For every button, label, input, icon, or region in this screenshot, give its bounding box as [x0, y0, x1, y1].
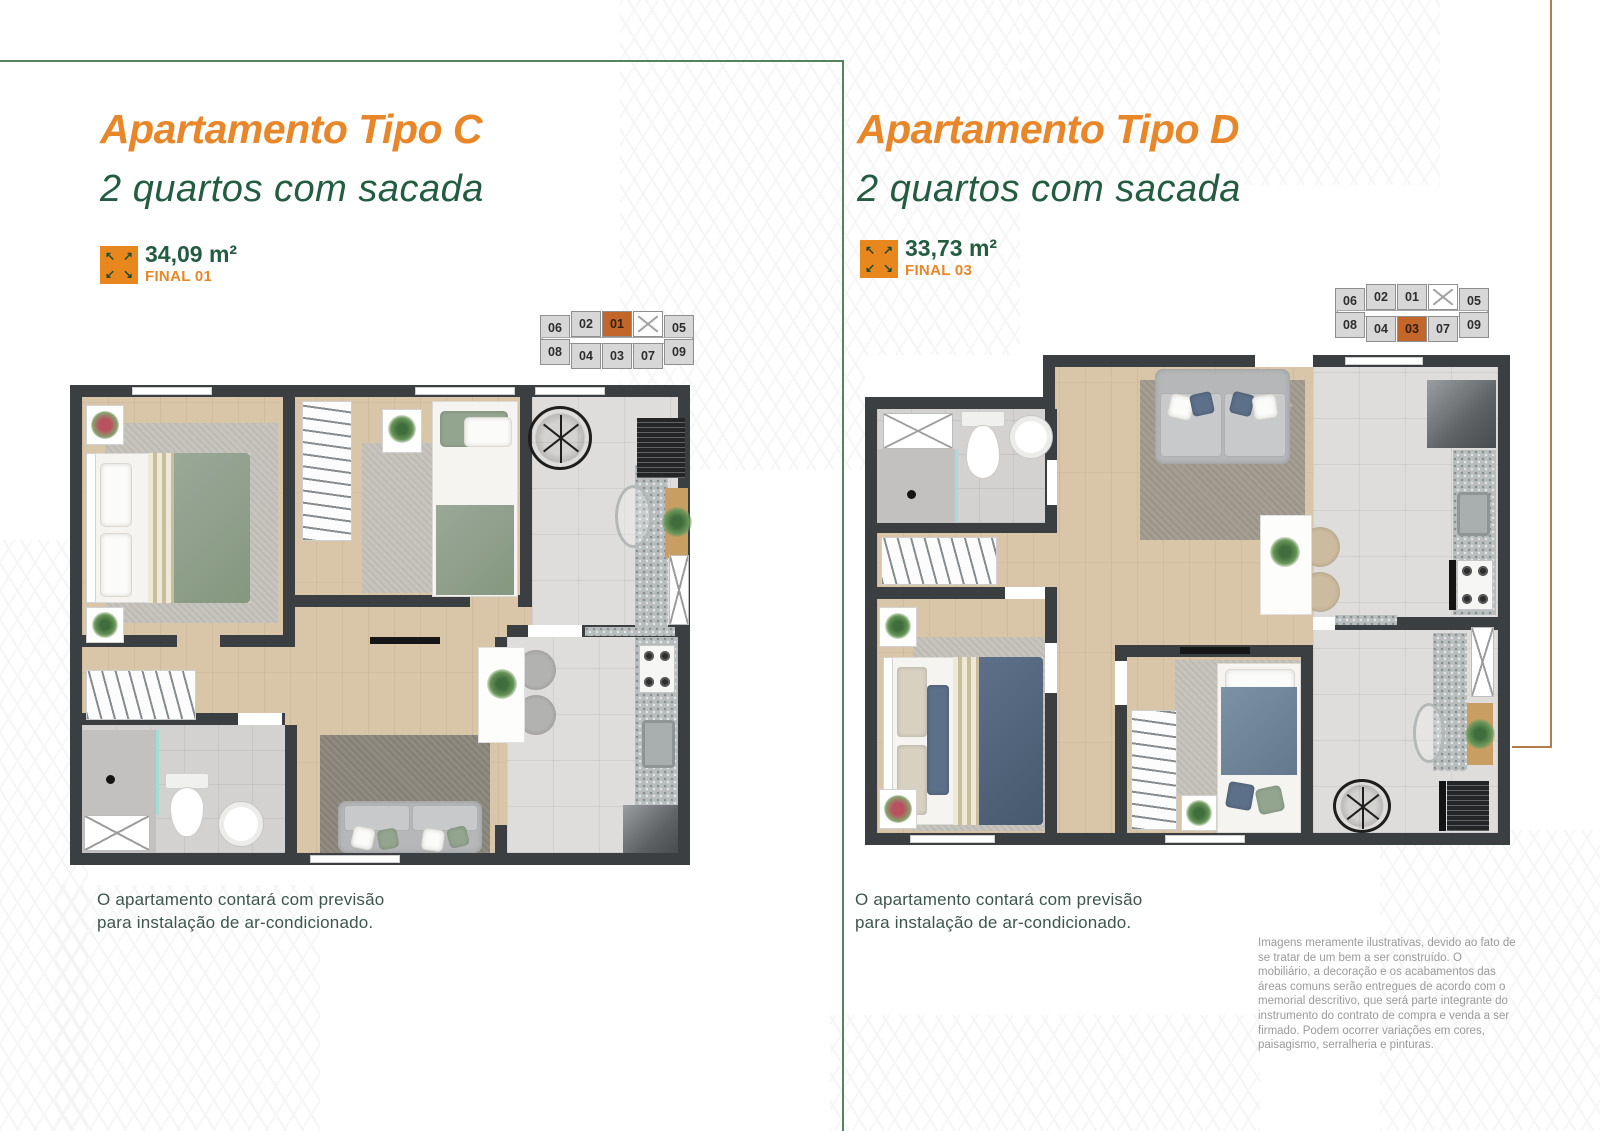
clothes-rack: [86, 670, 196, 720]
pillow: [927, 685, 949, 795]
ac-grill-unit: [637, 418, 685, 478]
fridge: [1427, 380, 1496, 448]
shower-glass: [156, 730, 159, 815]
plant: [388, 415, 416, 443]
window: [310, 855, 400, 863]
sofa: [338, 801, 482, 853]
pillow: [897, 667, 927, 737]
pillow: [100, 463, 132, 527]
open-wardrobe: [1131, 710, 1177, 830]
sofa: [1155, 369, 1290, 464]
round-sink: [1009, 415, 1053, 459]
shower-area: [877, 449, 955, 523]
oven-front: [1439, 781, 1446, 831]
bed-blanket: [436, 505, 514, 595]
glass-basin: [615, 485, 652, 548]
pillow: [1255, 785, 1286, 816]
pillow: [1251, 393, 1278, 420]
expand-arrows-icon: ↖↗ ↙↘: [100, 246, 138, 284]
keyplan-unit: 02: [1366, 284, 1396, 310]
flower-vase: [884, 795, 912, 823]
pillow: [376, 827, 399, 850]
keyplan-unit: 02: [571, 311, 601, 337]
stove: [639, 645, 675, 693]
kitchen-sink: [1457, 492, 1490, 536]
door-opening: [1045, 643, 1057, 693]
unit-position-keyplan: 06 02 01 05 08 04 03 07 09: [540, 310, 696, 370]
hanging-chair: [1333, 779, 1391, 833]
floorplan-tipo-c: [70, 385, 690, 865]
bed-runner: [148, 453, 174, 603]
ac-note: O apartamento contará com previsão para …: [855, 888, 1142, 934]
hanging-chair: [528, 406, 592, 470]
tv: [370, 637, 440, 644]
fridge: [623, 805, 678, 853]
bed-blanket: [979, 657, 1043, 825]
window: [1345, 357, 1423, 365]
panel-d-subtitle: 2 quartos com sacada: [857, 168, 1241, 211]
pillow: [1225, 781, 1255, 811]
keyplan-unit: 08: [1335, 312, 1365, 338]
toilet-bowl: [966, 425, 1000, 479]
plant: [1186, 800, 1212, 826]
unit-position-keyplan: 06 02 01 05 08 04 03 07 09: [1335, 283, 1491, 343]
bed-blanket: [174, 453, 250, 603]
bed-runner: [953, 657, 979, 825]
keyplan-unit: 01: [602, 311, 632, 337]
shower-glass: [955, 449, 958, 523]
glass-partition: [1471, 627, 1494, 697]
keyplan-unit: 07: [633, 343, 663, 369]
window: [910, 835, 995, 843]
keyplan-unit: 07: [1428, 316, 1458, 342]
panel-d-final: FINAL 03: [905, 262, 972, 279]
clothes-rack: [881, 537, 997, 585]
headboard: [86, 453, 96, 603]
flower-vase: [91, 411, 119, 439]
plant: [487, 669, 517, 699]
orange-frame-vertical: [1550, 0, 1552, 748]
plant: [885, 613, 911, 639]
bed-blanket: [1221, 687, 1297, 775]
expand-arrows-icon: ↖↗ ↙↘: [860, 240, 898, 278]
keyplan-unit: 04: [1366, 316, 1396, 342]
shower-glass-box: [883, 413, 953, 449]
elevator-x-icon: [633, 311, 663, 337]
kitchen-counter: [585, 627, 675, 636]
panel-c-subtitle: 2 quartos com sacada: [100, 168, 484, 211]
plant: [1465, 719, 1495, 749]
door-opening: [1115, 661, 1127, 705]
pillow: [1189, 391, 1215, 417]
panel-d-title: Apartamento Tipo D: [857, 106, 1239, 153]
pillow: [421, 828, 446, 853]
stove: [1457, 560, 1493, 610]
pillow: [350, 825, 376, 851]
ac-note: O apartamento contará com previsão para …: [97, 888, 384, 934]
green-frame-horizontal: [0, 60, 844, 62]
pass-through-counter: [1335, 615, 1397, 625]
keyplan-unit: 04: [571, 343, 601, 369]
tv: [1180, 647, 1250, 654]
chevron-pattern: [830, 1015, 1260, 1131]
floorplan-tipo-d: [865, 355, 1510, 845]
glass-basin: [1413, 703, 1445, 763]
elevator-x-icon: [1428, 284, 1458, 310]
keyplan-unit: 01: [1397, 284, 1427, 310]
panel-d-area: 33,73 m²: [905, 235, 997, 262]
door-opening: [528, 625, 582, 637]
round-sink: [218, 801, 264, 847]
brochure-page: Apartamento Tipo C 2 quartos com sacada …: [0, 0, 1600, 1131]
keyplan-unit: 09: [664, 339, 694, 365]
panel-c-final: FINAL 01: [145, 268, 212, 285]
chevron-pattern: [1020, 0, 1440, 185]
pillow: [100, 533, 132, 597]
exterior-area: [865, 355, 1043, 397]
door-opening: [238, 713, 282, 725]
glass-partition: [669, 555, 689, 625]
shower-head: [106, 775, 115, 784]
door-opening: [1313, 617, 1335, 630]
keyplan-unit: 08: [540, 339, 570, 365]
window: [132, 387, 212, 395]
panel-c-title: Apartamento Tipo C: [100, 106, 482, 153]
plant: [92, 612, 118, 638]
door-opening: [1047, 460, 1057, 505]
green-frame-vertical: [842, 60, 844, 1131]
keyplan-unit: 03: [602, 343, 632, 369]
keyplan-unit: 03: [1397, 316, 1427, 342]
shower-glass-box: [84, 815, 150, 851]
legal-disclaimer: Imagens meramente ilustrativas, devido a…: [1258, 936, 1516, 1053]
pillow: [464, 417, 512, 447]
plant: [662, 507, 692, 537]
door-opening: [1005, 587, 1045, 599]
ac-grill-unit: [1447, 781, 1489, 831]
panel-c-area: 34,09 m²: [145, 241, 237, 268]
entry-door-opening: [1255, 355, 1313, 367]
keyplan-unit: 09: [1459, 312, 1489, 338]
window: [535, 387, 605, 395]
plant: [1270, 537, 1300, 567]
window: [1165, 835, 1245, 843]
orange-frame-horizontal: [1512, 746, 1552, 748]
shower-head: [907, 490, 916, 499]
oven-front: [1449, 560, 1456, 610]
open-wardrobe: [302, 401, 352, 541]
kitchen-sink: [642, 720, 675, 768]
window: [415, 387, 515, 395]
